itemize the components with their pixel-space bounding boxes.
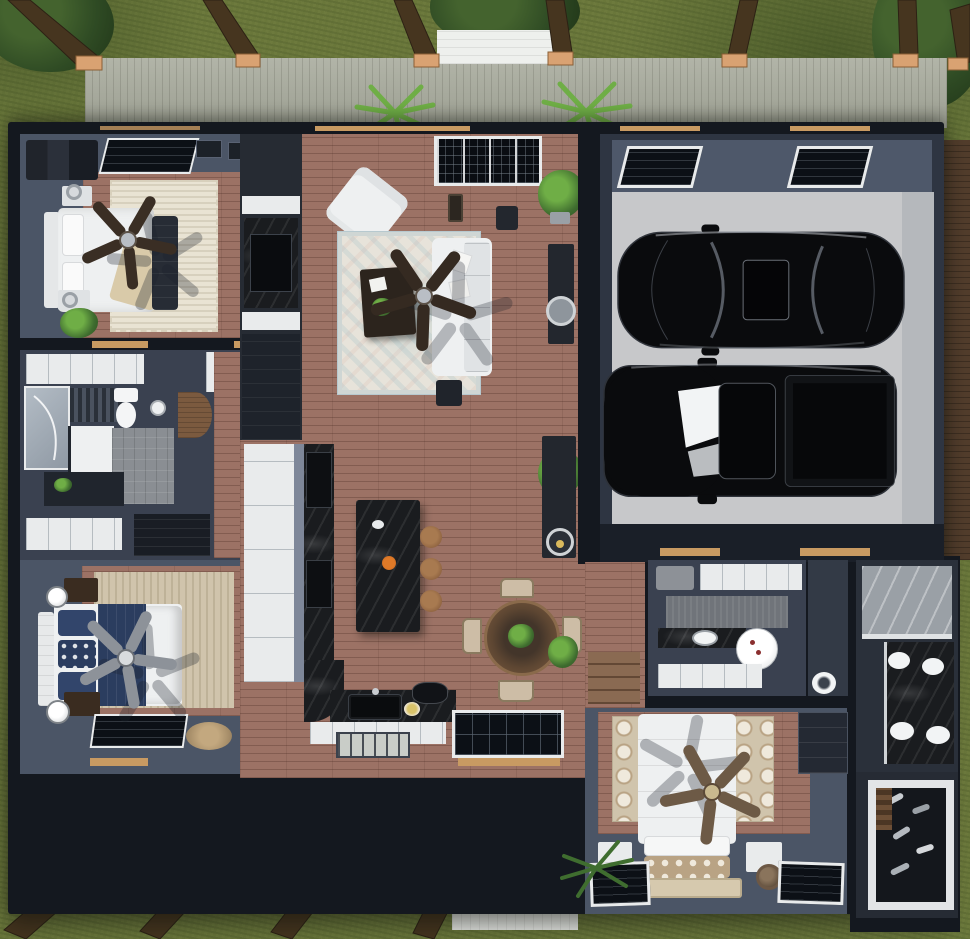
laundry-table-dot-2 <box>756 650 761 655</box>
bedroom2-duvet <box>146 606 182 704</box>
media-wall-tv <box>250 234 292 292</box>
media-wall-shelf-bottom <box>242 312 300 330</box>
media-wall-shelf-top <box>242 196 300 214</box>
entry-lantern <box>448 194 463 222</box>
kitchen-faucet <box>372 688 379 695</box>
laundry-table-dot-1 <box>750 640 755 645</box>
bedroom2-lintel <box>90 758 148 766</box>
vanity-basin-4 <box>926 726 950 744</box>
living-console <box>548 244 574 344</box>
kitchen-oven-upper <box>306 452 332 508</box>
garage-south-lintel-2 <box>800 548 870 556</box>
kitchen-small-window <box>336 732 410 758</box>
garage-south-lintel-1 <box>660 548 720 556</box>
bedroom1-tufted-bench <box>152 216 178 310</box>
lintel-trim-1 <box>315 126 470 131</box>
kitchen-window-sill <box>458 758 560 766</box>
bedroom1-skylight-window <box>99 138 200 174</box>
bedroom2-nightstand-top <box>64 578 98 602</box>
rear-hall-steps <box>588 652 640 704</box>
fiddle-plant-pot <box>550 212 570 224</box>
lintel-trim-3 <box>790 126 870 131</box>
entry-door-glass-panels <box>437 139 539 183</box>
kitchen-sink <box>348 694 402 720</box>
garage-window-2 <box>787 146 873 188</box>
island-flower-vase <box>382 556 396 570</box>
bath-linen-shelf-top <box>26 354 144 384</box>
toilet-closet-toilet <box>812 672 836 694</box>
island-stool-1 <box>420 526 442 548</box>
bedroom2-lamp-bottom <box>46 700 70 724</box>
vanity-basin-1 <box>888 652 910 669</box>
kitchen-big-window <box>452 710 564 758</box>
bedroom2-headboard <box>38 612 54 706</box>
entry-door <box>434 136 542 186</box>
bath-toilet-tank <box>114 388 138 402</box>
laundry-bench-gray <box>656 566 694 590</box>
bedroom1-nightstand-lamp-bottom <box>62 292 78 308</box>
kitchen-oven-lower <box>306 560 332 608</box>
bedroom2-pillow-pattern <box>58 640 96 668</box>
bedroom2-navy-blanket <box>98 604 146 706</box>
side-table-lantern <box>496 206 518 230</box>
dining-chair-bottom <box>498 680 534 702</box>
sofa-end-table <box>436 380 462 406</box>
entry-garage-wall <box>578 134 600 564</box>
kitchen-cooktop <box>412 682 448 704</box>
master-pillows-white <box>644 836 730 856</box>
island-stool-2 <box>420 558 442 580</box>
sofa-pillow-2 <box>448 278 471 301</box>
closet-wood-shelf <box>876 788 892 830</box>
lintel-trim-2 <box>620 126 700 131</box>
media-wall-cabinet <box>242 334 300 440</box>
bedroom2-lamp-top <box>46 586 68 608</box>
bath-shower-glass <box>24 386 70 470</box>
master-bath-ledge <box>862 634 952 639</box>
laundry-carpet <box>666 596 788 628</box>
master-pillows-tan <box>644 856 730 878</box>
laundry-cabinets-bottom <box>658 664 762 688</box>
bedroom1-pillow-1 <box>62 214 84 256</box>
entry-tray-gold-dot <box>556 540 564 548</box>
bath-lintel-1 <box>92 341 148 348</box>
dining-chair-top <box>500 578 534 598</box>
dining-chair-left <box>462 618 482 654</box>
shower-door-arc <box>26 388 72 472</box>
floor-plan-scene <box>0 0 970 939</box>
lintel-trim-4 <box>100 126 200 130</box>
bedroom1-nightstand-lamp-top <box>66 184 82 200</box>
laundry-sink <box>692 630 718 646</box>
garage-window-1 <box>617 146 703 188</box>
master-dresser <box>798 712 848 774</box>
vanity-basin-2 <box>922 658 944 675</box>
kitchen-cabinet-run <box>244 444 296 682</box>
black-pickup-truck <box>602 356 910 506</box>
bedroom2-pillow-navy-1 <box>58 610 96 636</box>
island-stool-3 <box>420 590 442 612</box>
master-palm-plant <box>556 832 636 904</box>
bedroom2-round-rug <box>186 722 232 750</box>
bath-wood-door <box>178 392 212 438</box>
kitchen-cabinet-edge <box>294 444 304 682</box>
master-floor-window-right <box>777 861 844 905</box>
kitchen-dish-item <box>404 702 420 716</box>
bath-dark-closet <box>134 514 210 556</box>
vanity-basin-3 <box>890 722 914 740</box>
master-bath-marble-wall <box>862 566 952 636</box>
bedroom1-wall-art <box>196 140 222 158</box>
garage-south-wall <box>600 524 944 562</box>
bath-vanity <box>68 426 114 472</box>
island-dish <box>372 520 384 529</box>
bath-small-sink <box>150 400 166 416</box>
bath-toilet-bowl <box>116 402 136 428</box>
bedroom1-closet-items <box>26 140 98 180</box>
bedroom2-floor-window <box>90 714 189 748</box>
master-mattress <box>638 714 736 844</box>
laundry-cabinets-top <box>700 564 802 590</box>
console-round-mirror <box>546 296 576 326</box>
black-sedan <box>616 226 906 354</box>
bath-cabinets-bottom <box>26 518 122 550</box>
